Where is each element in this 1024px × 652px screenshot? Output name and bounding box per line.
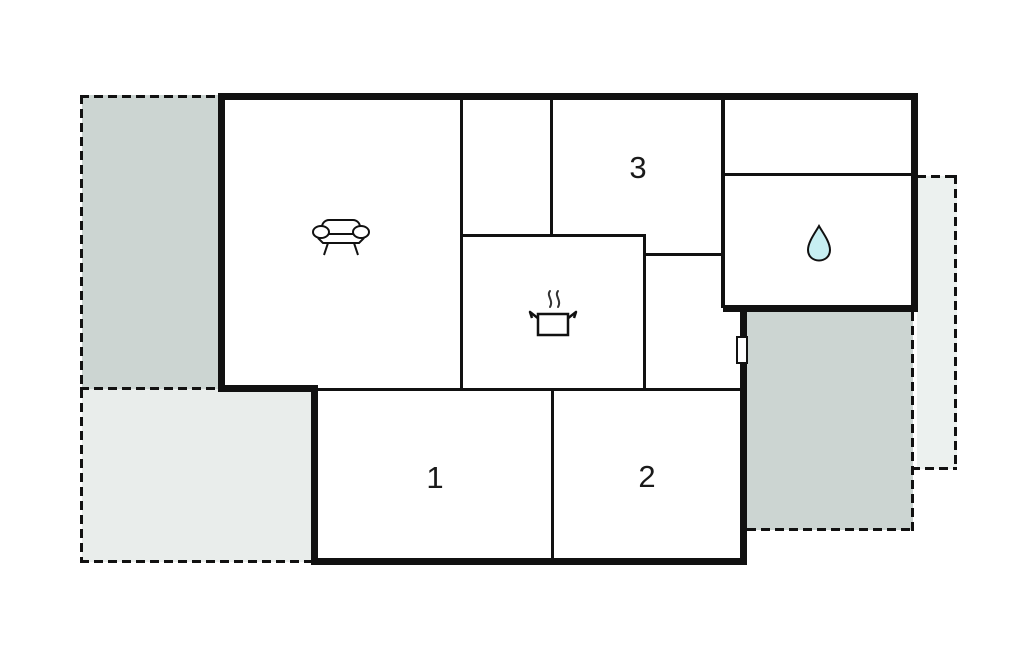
dashed-line-right-strip-bottom — [911, 467, 957, 470]
sofa-icon — [312, 216, 370, 258]
dashed-line-top-left-top — [80, 95, 220, 98]
wall-kitchen-top — [460, 234, 646, 237]
door-marker — [736, 336, 748, 364]
wall-outer-step-horizontal — [218, 385, 318, 392]
wall-bedroom3-right — [721, 98, 725, 308]
wall-outer-step-vertical — [311, 385, 318, 565]
terrace-top-left — [82, 95, 218, 389]
wall-outer-left — [218, 93, 225, 392]
wall-living-room-right — [460, 98, 463, 390]
water-drop-icon — [804, 224, 834, 262]
wall-bathroom-bottom — [723, 305, 917, 312]
terrace-bottom-right — [747, 312, 913, 530]
bedroom-2-label: 2 — [622, 460, 672, 494]
wall-kitchen-right — [643, 234, 646, 391]
wall-hallway-top — [643, 253, 725, 256]
entrance-room-area — [725, 100, 911, 173]
wall-bedroom3-left — [550, 98, 553, 237]
dashed-line-left-middle — [80, 387, 218, 390]
dashed-line-bottom-left — [80, 560, 314, 563]
storage-room-area — [463, 100, 550, 234]
dashed-line-left — [80, 95, 83, 563]
wall-bedrooms-top — [318, 388, 743, 391]
terrace-right-strip — [917, 176, 957, 469]
wall-outer-bottom — [311, 558, 747, 565]
hallway-area — [646, 256, 721, 388]
terrace-bottom-left — [82, 389, 313, 562]
dashed-line-right-inner — [911, 312, 914, 531]
bedroom-1-label: 1 — [410, 461, 460, 495]
bedroom-3-label: 3 — [613, 151, 663, 185]
floor-plan: 3 1 2 — [0, 0, 1024, 652]
wall-outer-right-upper — [911, 93, 918, 312]
wall-outer-top — [218, 93, 918, 100]
wall-bathroom-top — [721, 173, 911, 176]
dashed-line-right-strip-top — [917, 175, 957, 178]
dashed-line-bottom-right — [747, 528, 913, 531]
cooking-pot-icon — [526, 288, 580, 342]
dashed-line-right-strip-side — [954, 175, 957, 470]
wall-bedroom-divider — [551, 391, 554, 558]
